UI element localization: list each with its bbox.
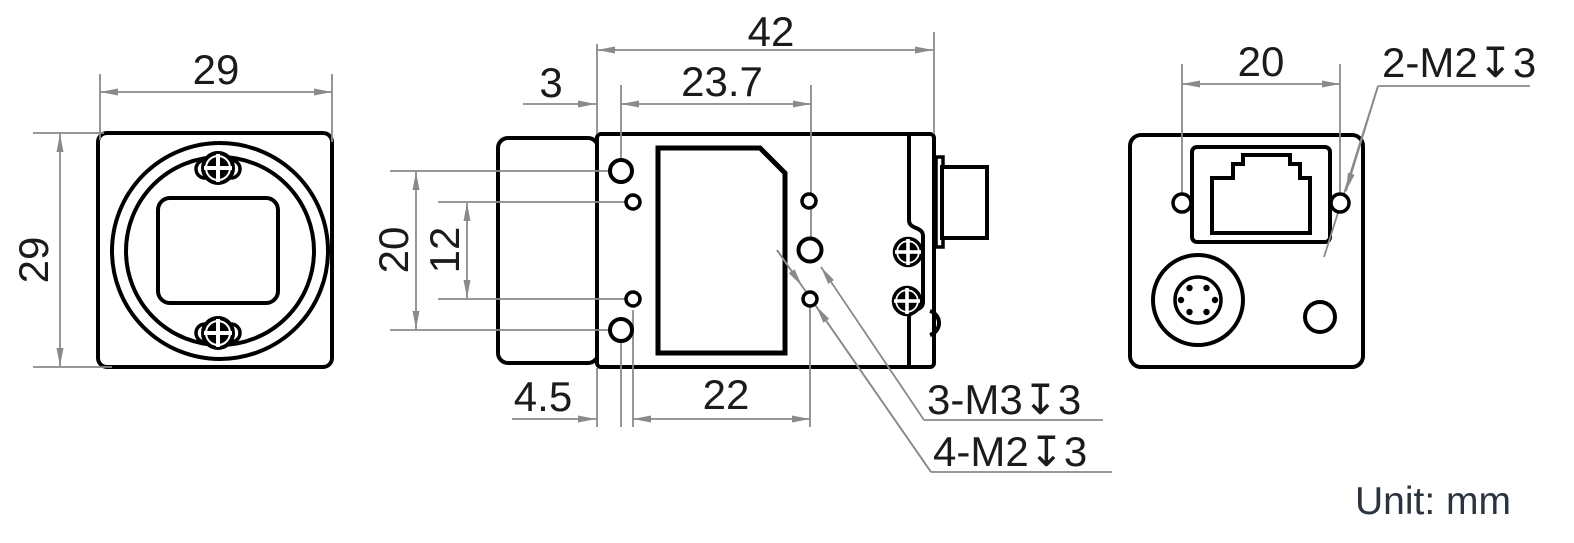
gpio-connector	[936, 157, 987, 247]
side-screw-upper	[895, 239, 922, 266]
back-m2-thread-label: 2-M2↧3	[1382, 39, 1536, 86]
power-connector	[1153, 255, 1243, 345]
dim-value: 12	[421, 227, 468, 274]
pin	[1203, 309, 1209, 315]
dim-value: 22	[703, 371, 750, 418]
sensor-window	[158, 198, 278, 303]
pin	[1212, 297, 1218, 303]
m2-hole-back-left	[1173, 194, 1191, 212]
pin	[1186, 285, 1192, 291]
m3-hole-right	[799, 239, 822, 262]
side-view: 42 3 23.7 20 12	[370, 8, 1112, 475]
status-led	[1305, 302, 1335, 332]
m3-hole-top-left	[610, 160, 632, 182]
dim-front-width: 29	[100, 46, 332, 142]
dim-value: 42	[748, 8, 795, 55]
unit-note: Unit: mm	[1355, 480, 1511, 523]
mechanical-drawing-page: 29 29	[0, 0, 1574, 543]
back-view: 20 2-M2↧3	[1130, 38, 1536, 367]
connector-body	[942, 167, 987, 238]
m3-hole-bottom-left	[610, 319, 632, 341]
front-view: 29 29	[10, 46, 332, 367]
pin	[1178, 297, 1184, 303]
m2-hole-top-right	[802, 194, 816, 208]
m2-hole-bottom-left	[626, 292, 640, 306]
pin	[1203, 285, 1209, 291]
dim-value: 3	[539, 59, 562, 106]
m2-hole-top-left	[626, 195, 640, 209]
front-screw-bottom	[196, 318, 240, 348]
m2-hole-bottom-right	[803, 292, 817, 306]
dim-value: 29	[193, 46, 240, 93]
side-screw-lower	[894, 288, 921, 315]
dim-value: 20	[1238, 38, 1285, 85]
m2-thread-label: 4-M2↧3	[933, 428, 1087, 475]
pin	[1186, 309, 1192, 315]
dim-value: 20	[370, 227, 417, 274]
dim-value: 4.5	[514, 373, 572, 420]
dim-value: 23.7	[681, 58, 763, 105]
heatsink-plate	[658, 148, 785, 353]
dim-value: 29	[10, 237, 57, 284]
camera-dimension-drawing: 29 29	[0, 0, 1574, 543]
m3-thread-label: 3-M3↧3	[927, 376, 1081, 423]
m2-hole-back-right	[1331, 194, 1349, 212]
dim-side-total-width: 42	[597, 8, 934, 134]
dim-side-edge-offset: 3	[523, 59, 596, 106]
